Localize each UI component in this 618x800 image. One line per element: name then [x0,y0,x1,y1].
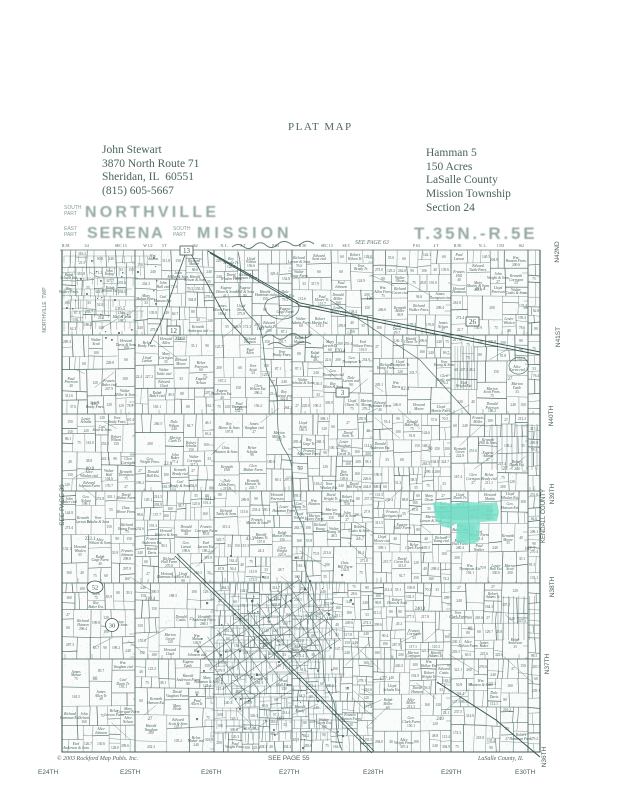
svg-text:27: 27 [346,421,350,425]
svg-text:35.1: 35.1 [191,344,197,348]
svg-text:Clark: Clark [160,384,169,388]
svg-text:125.6: 125.6 [192,502,200,506]
svg-text:40: 40 [313,358,317,362]
svg-text:120: 120 [92,381,98,385]
svg-text:240: 240 [140,586,146,590]
svg-text:Moore: Moore [175,362,186,366]
svg-text:235.3: 235.3 [195,287,203,291]
svg-text:150: 150 [139,651,145,655]
svg-text:307.4: 307.4 [400,745,408,749]
svg-text:90: 90 [181,579,185,583]
svg-text:55: 55 [427,507,431,511]
svg-text:LaSalle County, IL: LaSalle County, IL [477,756,524,762]
svg-text:Green Tr.: Green Tr. [337,452,351,456]
svg-text:162: 162 [518,244,524,248]
svg-text:90: 90 [322,733,326,737]
svg-text:277.3: 277.3 [406,615,414,619]
svg-text:Martin & Sons: Martin & Sons [245,521,268,525]
svg-text:240: 240 [490,673,496,677]
svg-text:69.7: 69.7 [443,351,449,355]
svg-text:251.8: 251.8 [530,493,538,497]
svg-text:240: 240 [137,551,143,555]
svg-text:55: 55 [521,444,525,448]
svg-text:27: 27 [508,377,513,382]
svg-text:217.8: 217.8 [421,615,429,619]
svg-text:N40TH: N40TH [548,405,555,426]
svg-text:124.9: 124.9 [357,279,365,283]
svg-text:Larson: Larson [453,257,465,261]
svg-text:Davis Tr.: Davis Tr. [452,496,466,500]
svg-text:195.3: 195.3 [518,316,526,320]
svg-text:80: 80 [534,327,538,331]
svg-text:135.4: 135.4 [487,739,495,743]
svg-text:81.4: 81.4 [358,551,364,555]
svg-text:314.0: 314.0 [243,651,251,655]
svg-text:80: 80 [468,627,473,632]
svg-text:Larson: Larson [141,359,153,363]
svg-text:297.9: 297.9 [123,567,131,571]
svg-text:119.5: 119.5 [359,348,367,352]
svg-text:27: 27 [189,617,193,621]
svg-text:Nelson: Nelson [122,720,133,724]
svg-text:260.4: 260.4 [456,546,464,550]
svg-text:120: 120 [321,427,327,431]
svg-text:205.1: 205.1 [375,383,383,387]
svg-text:324.7: 324.7 [441,460,449,464]
svg-text:311.8: 311.8 [162,259,170,263]
svg-text:322.8: 322.8 [280,397,288,401]
svg-text:299.1: 299.1 [425,470,433,474]
svg-text:160: 160 [363,661,369,665]
svg-text:80: 80 [297,352,301,356]
svg-text:240: 240 [206,270,212,274]
svg-text:60: 60 [93,677,98,682]
svg-text:216.6: 216.6 [364,688,372,692]
svg-text:40: 40 [335,623,339,627]
svg-text:N. L.: N. L. [479,244,487,248]
svg-text:240.2: 240.2 [415,607,426,612]
svg-text:225.3: 225.3 [206,696,214,700]
svg-text:240: 240 [363,632,369,636]
svg-text:33.9: 33.9 [112,551,118,555]
svg-text:150: 150 [113,442,119,446]
svg-text:75: 75 [501,476,505,480]
svg-text:Hall Est.: Hall Est. [145,474,159,478]
svg-text:Green etal: Green etal [392,291,408,295]
svg-text:Hall etal: Hall etal [155,285,169,289]
svg-text:240: 240 [150,270,156,274]
svg-text:261.8: 261.8 [453,301,461,305]
svg-text:Brady Tr.: Brady Tr. [354,267,368,271]
svg-text:295.8: 295.8 [338,324,346,328]
svg-text:90.4: 90.4 [382,634,388,638]
svg-text:240: 240 [344,651,350,655]
svg-text:100: 100 [441,552,447,556]
svg-text:120: 120 [118,404,124,408]
svg-text:224.2: 224.2 [488,682,496,686]
svg-text:150.1: 150.1 [262,508,270,512]
svg-text:299.6: 299.6 [121,744,129,748]
svg-text:55: 55 [207,571,211,575]
svg-text:75: 75 [77,441,81,445]
svg-text:Hanson Est.: Hanson Est. [500,506,519,510]
svg-text:204.8: 204.8 [490,258,498,262]
svg-text:180.8: 180.8 [267,460,275,464]
svg-text:75: 75 [359,571,363,575]
svg-text:240: 240 [137,326,143,330]
svg-text:40: 40 [139,670,143,674]
svg-text:162.4: 162.4 [229,559,237,563]
svg-text:317.3: 317.3 [190,463,198,467]
svg-text:Wright Tr.: Wright Tr. [422,675,437,679]
svg-text:140.5: 140.5 [224,701,232,705]
svg-text:P 63: P 63 [413,244,420,248]
svg-text:40: 40 [389,740,393,744]
svg-text:33: 33 [144,301,148,305]
svg-text:136.3: 136.3 [314,382,322,386]
svg-text:100: 100 [122,377,128,381]
svg-text:128.0: 128.0 [111,746,119,750]
svg-text:301.9: 301.9 [205,738,213,742]
svg-text:Miller: Miller [472,420,483,424]
svg-text:55: 55 [225,325,229,329]
svg-text:100: 100 [79,587,85,591]
svg-text:160: 160 [81,720,87,724]
svg-text:80: 80 [303,721,307,725]
svg-text:60: 60 [442,255,446,259]
svg-text:150: 150 [434,447,440,451]
svg-text:31.2: 31.2 [395,481,401,485]
svg-text:55.1: 55.1 [395,588,401,592]
svg-text:154.8: 154.8 [282,277,290,281]
svg-text:27: 27 [191,469,195,473]
svg-text:226.6: 226.6 [363,477,371,481]
svg-text:80: 80 [218,493,222,497]
svg-text:160: 160 [507,684,513,688]
svg-text:Peterson: Peterson [490,290,504,294]
svg-text:60: 60 [299,324,303,328]
svg-text:230.6: 230.6 [242,727,250,731]
svg-text:Baker: Baker [480,644,489,648]
svg-text:Thompson etal: Thompson etal [322,373,344,377]
svg-text:52: 52 [92,585,99,592]
svg-text:179.2: 179.2 [530,737,538,741]
svg-text:325.5: 325.5 [421,649,429,653]
svg-text:55.8: 55.8 [306,539,312,543]
svg-text:33: 33 [87,301,91,305]
svg-text:240: 240 [320,590,326,594]
svg-text:273.0: 273.0 [375,268,383,272]
svg-text:301.1: 301.1 [107,495,115,499]
svg-text:Tuttle Fmrs.: Tuttle Fmrs. [469,268,487,272]
svg-text:75.9: 75.9 [313,552,319,556]
svg-text:Corrigan: Corrigan [121,461,135,465]
svg-text:N37TH: N37TH [544,653,551,674]
svg-text:234.3: 234.3 [283,745,291,749]
svg-text:75: 75 [466,356,470,360]
svg-text:150: 150 [67,473,73,477]
svg-text:75: 75 [350,407,354,411]
svg-text:40: 40 [68,460,72,464]
svg-text:75: 75 [352,585,356,589]
svg-text:257.5: 257.5 [364,497,372,501]
svg-text:E24TH: E24TH [38,769,59,776]
svg-text:33: 33 [283,723,287,727]
svg-text:90: 90 [250,453,254,457]
svg-text:23.4: 23.4 [270,392,276,396]
svg-text:75: 75 [206,716,210,720]
svg-text:90: 90 [410,269,414,273]
svg-text:60: 60 [274,698,278,702]
svg-text:160: 160 [66,571,72,575]
svg-text:232.6: 232.6 [136,527,144,531]
svg-text:308.6: 308.6 [373,485,381,489]
svg-text:200: 200 [216,741,222,745]
svg-text:90: 90 [396,417,400,421]
svg-text:240: 240 [514,467,520,471]
svg-text:Baker Est.: Baker Est. [88,605,103,609]
svg-text:263.7: 263.7 [294,526,302,530]
svg-text:27: 27 [252,430,256,434]
svg-text:58.1: 58.1 [365,460,371,464]
svg-text:239.1: 239.1 [532,689,540,693]
svg-text:Anderson Est.: Anderson Est. [141,541,163,545]
svg-text:E25TH: E25TH [120,769,141,776]
svg-text:325.6: 325.6 [495,653,503,657]
svg-text:48.2: 48.2 [469,368,475,372]
svg-text:Adams: Adams [147,257,159,261]
svg-text:150: 150 [344,502,350,506]
svg-text:247.6: 247.6 [480,652,488,656]
svg-text:286.2: 286.2 [254,391,262,395]
svg-text:98.6: 98.6 [137,513,143,517]
svg-text:240: 240 [436,340,442,344]
svg-text:40: 40 [80,571,84,575]
svg-text:Martin: Martin [484,497,495,501]
svg-text:27: 27 [471,481,475,485]
svg-text:33: 33 [385,458,389,462]
svg-text:Schultz & Sons: Schultz & Sons [292,381,315,385]
svg-text:80: 80 [356,497,360,501]
svg-text:Martin: Martin [293,340,304,344]
svg-text:317.9: 317.9 [311,282,319,286]
svg-text:33: 33 [282,653,286,657]
svg-text:Mahar: Mahar [188,262,200,266]
svg-text:Green etal: Green etal [509,368,525,372]
svg-text:Young etal: Young etal [433,539,449,543]
svg-text:275.8: 275.8 [237,312,245,316]
svg-text:21.5: 21.5 [79,261,85,265]
svg-text:91.8: 91.8 [500,354,506,358]
svg-text:241.1: 241.1 [101,457,109,461]
svg-text:120: 120 [512,589,518,593]
svg-text:65.9: 65.9 [293,738,299,742]
svg-text:90: 90 [428,447,433,452]
svg-text:63.7: 63.7 [93,646,99,650]
svg-text:200: 200 [266,329,272,333]
svg-text:222.9: 222.9 [456,454,464,458]
svg-text:60: 60 [331,425,335,429]
svg-text:120: 120 [413,561,419,565]
svg-text:33: 33 [513,645,517,649]
svg-text:100: 100 [487,419,493,423]
svg-text:120: 120 [432,722,438,726]
svg-text:50.8: 50.8 [456,683,462,687]
svg-text:39.3: 39.3 [126,591,132,595]
svg-text:213.3: 213.3 [407,705,415,709]
svg-text:163.1: 163.1 [297,564,305,568]
svg-text:283.0: 283.0 [304,744,312,748]
svg-text:60: 60 [400,458,404,462]
svg-text:171.2: 171.2 [94,271,102,275]
svg-text:Nelson Farm: Nelson Farm [457,644,478,648]
svg-text:55: 55 [207,280,211,284]
svg-text:90: 90 [468,683,472,687]
svg-text:Gage Tr.: Gage Tr. [303,442,316,446]
svg-text:150: 150 [234,407,242,412]
svg-text:190.2: 190.2 [313,404,321,408]
svg-text:E27TH: E27TH [279,769,300,776]
svg-text:100.1: 100.1 [329,446,337,450]
svg-text:60: 60 [477,630,481,634]
svg-text:206.4: 206.4 [79,627,87,631]
svg-text:Corrigan etal: Corrigan etal [382,514,402,518]
svg-text:246.0: 246.0 [378,308,386,312]
svg-text:120: 120 [99,416,105,420]
svg-text:33: 33 [515,390,519,394]
svg-text:250.5: 250.5 [294,598,302,602]
svg-text:Johnson Farm: Johnson Farm [78,484,100,488]
svg-text:Wright Est.: Wright Est. [456,384,473,388]
svg-text:100: 100 [375,594,381,598]
svg-text:208.1: 208.1 [530,530,538,534]
svg-text:67.8: 67.8 [218,567,224,571]
svg-text:200: 200 [454,556,460,560]
svg-text:Corrigan: Corrigan [406,654,420,658]
svg-text:321.2: 321.2 [205,497,216,502]
svg-text:60: 60 [233,600,237,604]
svg-text:87.1: 87.1 [275,367,281,371]
svg-text:213.6: 213.6 [323,551,331,555]
svg-text:Johnson etal: Johnson etal [188,653,207,657]
svg-text:27.9: 27.9 [364,510,370,514]
svg-text:60: 60 [340,255,344,259]
svg-text:33: 33 [439,688,443,692]
svg-text:150: 150 [493,370,499,374]
svg-text:Moore etal: Moore etal [373,539,390,543]
svg-text:60: 60 [328,348,332,352]
svg-text:276.0: 276.0 [205,295,213,299]
svg-text:211.7: 211.7 [335,614,343,618]
svg-text:© 2003 Rockford Map Publs. Inc: © 2003 Rockford Map Publs. Inc. [57,755,138,762]
svg-text:198.2: 198.2 [112,646,120,650]
svg-text:100: 100 [217,713,223,717]
svg-text:56.4: 56.4 [230,567,236,571]
svg-text:100: 100 [217,724,223,728]
svg-text:4 T: 4 T [434,244,440,248]
svg-text:110.3: 110.3 [432,645,440,649]
svg-text:SEE PAGE 55: SEE PAGE 55 [268,755,310,762]
svg-text:165.1: 165.1 [153,405,161,409]
svg-text:170.4: 170.4 [335,349,346,354]
svg-text:55: 55 [323,575,327,579]
svg-text:N36TH: N36TH [541,746,548,767]
svg-text:167.2: 167.2 [218,379,226,383]
svg-text:319.9: 319.9 [204,556,212,560]
svg-text:Hill: Hill [223,468,230,472]
svg-text:SEC 13: SEC 13 [115,244,127,248]
svg-text:75: 75 [94,596,98,600]
svg-text:Whalen Est.: Whalen Est. [501,496,519,500]
svg-text:136.1: 136.1 [394,339,402,343]
svg-text:200: 200 [216,366,222,370]
svg-text:40: 40 [269,745,273,749]
svg-text:147.3: 147.3 [335,647,343,651]
svg-text:34.7: 34.7 [356,537,365,542]
svg-text:Vaughan: Vaughan [338,444,351,448]
svg-text:207.3: 207.3 [460,368,468,372]
svg-text:115.3: 115.3 [241,544,249,548]
svg-text:120: 120 [322,465,328,469]
svg-text:235.5: 235.5 [364,738,372,742]
svg-text:Walker Est.: Walker Est. [421,664,438,668]
svg-text:Moore: Moore [413,407,424,411]
svg-text:215.8: 215.8 [223,487,231,491]
svg-text:80: 80 [389,610,393,614]
svg-text:98.8: 98.8 [375,601,381,605]
svg-text:244.3: 244.3 [142,282,150,286]
svg-text:201.7: 201.7 [278,340,286,344]
svg-text:Tuttle etal: Tuttle etal [157,372,172,376]
svg-text:E30TH: E30TH [515,769,536,776]
svg-text:3 T: 3 T [162,244,168,248]
svg-text:240: 240 [436,717,444,722]
svg-text:27: 27 [146,572,150,576]
svg-text:60: 60 [339,270,343,274]
svg-text:265.6: 265.6 [475,616,483,620]
svg-text:325.7: 325.7 [216,538,224,542]
svg-text:Clark Tr.: Clark Tr. [168,439,181,443]
svg-text:27: 27 [138,469,142,473]
svg-text:186.2: 186.2 [202,549,210,553]
svg-text:225.8: 225.8 [252,746,260,750]
svg-text:60.7: 60.7 [172,312,178,316]
svg-text:190.9: 190.9 [374,473,382,477]
svg-text:240: 240 [171,427,177,431]
svg-text:145.2: 145.2 [174,725,182,729]
svg-text:130.6: 130.6 [97,742,105,746]
svg-text:240: 240 [281,380,287,384]
svg-text:150: 150 [414,444,420,448]
svg-text:100: 100 [382,642,388,646]
svg-text:Hill & Sons: Hill & Sons [478,441,497,445]
svg-text:33: 33 [119,268,123,272]
svg-text:Whalen & Sons: Whalen & Sons [155,533,179,537]
svg-text:76.6: 76.6 [296,264,302,268]
svg-text:139.4: 139.4 [240,604,248,608]
svg-text:27: 27 [441,494,445,498]
svg-text:SEE PAGE 39: SEE PAGE 39 [59,484,66,526]
svg-text:12: 12 [170,327,178,335]
svg-text:80: 80 [519,339,523,343]
svg-text:231.8: 231.8 [324,602,332,606]
svg-text:289.4: 289.4 [63,340,71,344]
svg-text:295.4: 295.4 [293,440,301,444]
svg-text:Baker etal: Baker etal [149,394,164,398]
svg-text:94.6: 94.6 [416,295,422,299]
svg-text:100: 100 [309,720,315,724]
svg-text:133.4: 133.4 [519,304,527,308]
